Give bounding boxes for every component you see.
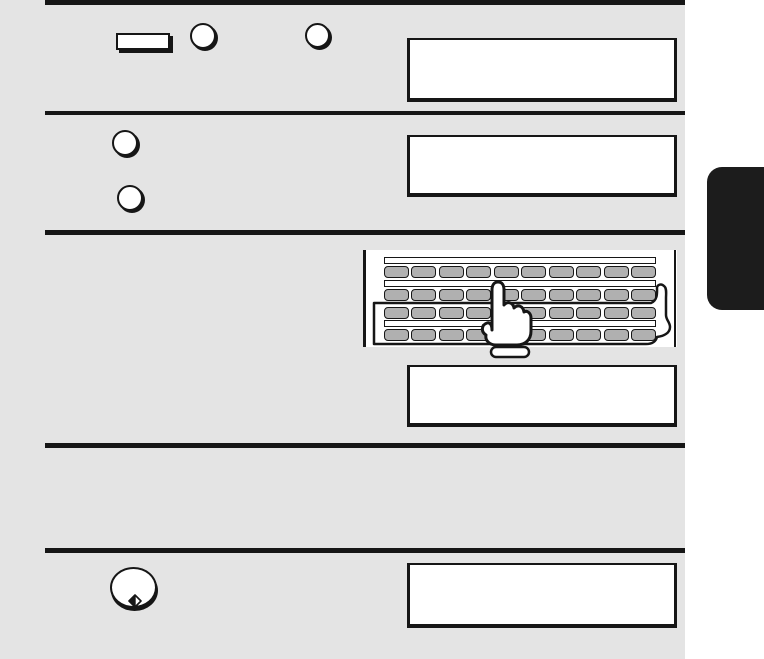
keyboard-key	[384, 266, 409, 278]
display-readout-box	[407, 38, 677, 102]
keyboard-key	[549, 266, 574, 278]
keyboard-key	[576, 329, 601, 341]
round-key-icon	[305, 23, 330, 48]
section-divider-4	[45, 443, 685, 448]
rectangular-key-icon	[116, 33, 170, 50]
keyboard-key	[576, 307, 601, 319]
display-readout-box	[407, 135, 677, 197]
keyboard-key	[604, 307, 629, 319]
keyboard-key	[631, 289, 656, 301]
page-edge-tab	[707, 167, 764, 310]
keyboard-key	[439, 266, 464, 278]
keyboard-key	[411, 266, 436, 278]
keyboard-key	[604, 329, 629, 341]
display-readout-box	[407, 365, 677, 427]
keyboard-label-strip	[384, 257, 656, 264]
start-key-icon	[110, 567, 157, 608]
keyboard-key	[411, 289, 436, 301]
round-key-icon	[190, 23, 216, 49]
keyboard-key	[576, 266, 601, 278]
keyboard-key	[384, 307, 409, 319]
section-divider-5	[45, 548, 685, 553]
keyboard-key	[494, 266, 519, 278]
keyboard-key	[411, 329, 436, 341]
start-diamond-icon	[128, 594, 142, 608]
section-divider-3	[45, 230, 685, 235]
section-divider-1	[45, 0, 685, 5]
keyboard-key	[631, 329, 656, 341]
keyboard-key	[604, 289, 629, 301]
round-key-icon	[117, 185, 143, 211]
display-readout-box	[407, 563, 677, 628]
keyboard-key	[631, 307, 656, 319]
section-divider-2	[45, 111, 685, 115]
manual-page	[0, 0, 764, 659]
keyboard-key	[384, 289, 409, 301]
keyboard-key	[631, 266, 656, 278]
keyboard-key	[604, 266, 629, 278]
keyboard-key	[411, 307, 436, 319]
keyboard-key	[521, 266, 546, 278]
keyboard-key	[466, 266, 491, 278]
keyboard-key	[384, 329, 409, 341]
round-key-icon	[112, 130, 138, 156]
pointing-hand-icon	[455, 278, 565, 360]
keyboard-key	[576, 289, 601, 301]
keyboard-key-row	[384, 266, 656, 278]
